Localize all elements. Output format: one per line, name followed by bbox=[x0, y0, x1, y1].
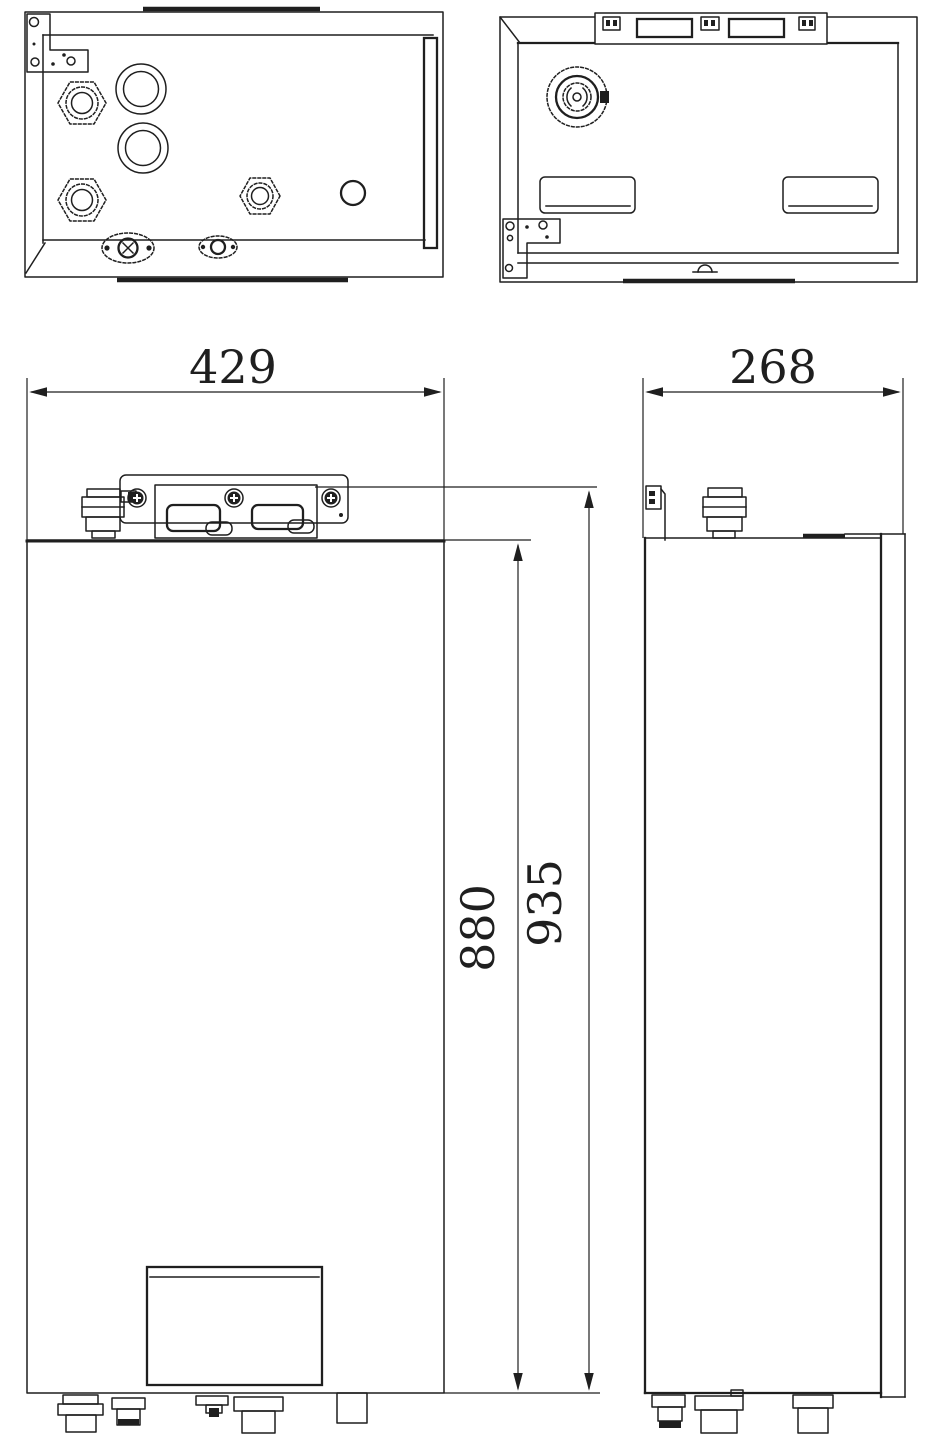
casing-inner-edges bbox=[26, 35, 433, 273]
bottom-view bbox=[500, 13, 917, 282]
pipe-collar bbox=[116, 64, 166, 114]
dim-label-side-depth: 268 bbox=[729, 340, 817, 394]
round-port bbox=[341, 181, 365, 205]
flue-collar bbox=[703, 488, 746, 538]
hex-pipe-fitting bbox=[58, 179, 106, 221]
pipe-fitting bbox=[652, 1395, 685, 1428]
keyhole-slot bbox=[252, 505, 314, 533]
pipe-fitting bbox=[112, 1398, 145, 1425]
fan-knob bbox=[547, 67, 609, 127]
side-view bbox=[645, 486, 905, 1433]
dim-label-overall-height: 935 bbox=[518, 859, 572, 947]
bottom-pipe-connections bbox=[58, 1393, 367, 1433]
boiler-dimension-drawing: 429 268 880 935 bbox=[0, 0, 931, 1448]
pipe-fitting bbox=[793, 1395, 833, 1433]
bracket-screw bbox=[225, 489, 243, 507]
oval-mount-hole bbox=[199, 236, 237, 258]
mounting-bracket-top-left bbox=[27, 14, 88, 72]
oval-mount-hole bbox=[102, 233, 154, 263]
valve-stem bbox=[196, 1396, 228, 1417]
pipe-fitting bbox=[695, 1390, 743, 1433]
vent-slot bbox=[540, 177, 635, 213]
front-view bbox=[27, 475, 444, 1433]
side-rail bbox=[424, 38, 437, 248]
flue-collar bbox=[82, 489, 124, 538]
pipe-collar bbox=[118, 123, 168, 173]
pipe-stub bbox=[337, 1393, 367, 1423]
rear-mounting-rail bbox=[845, 534, 905, 1397]
bracket-screw bbox=[128, 489, 146, 507]
keyhole-slot bbox=[167, 505, 232, 535]
bottom-pipe-connections bbox=[652, 1390, 833, 1433]
dim-label-body-height: 880 bbox=[451, 884, 505, 972]
top-rear-view bbox=[25, 9, 443, 280]
wall-bracket bbox=[120, 475, 348, 538]
hex-pipe-fitting bbox=[240, 178, 280, 214]
bracket-screw bbox=[322, 489, 340, 507]
top-mounting-strip bbox=[595, 13, 827, 44]
drain-tab bbox=[693, 265, 717, 272]
hex-pipe-fitting bbox=[58, 82, 106, 124]
body-outline bbox=[27, 540, 444, 1393]
hanging-cleat bbox=[646, 486, 665, 540]
mounting-bracket-bottom-left bbox=[503, 219, 560, 278]
casing-outline bbox=[500, 17, 917, 282]
vent-slot bbox=[783, 177, 878, 213]
dim-label-front-width: 429 bbox=[189, 340, 277, 394]
pipe-fitting bbox=[234, 1397, 283, 1433]
corner-edge bbox=[500, 17, 520, 43]
dimension-side-depth: 268 bbox=[643, 340, 903, 538]
drawing-svg: 429 268 880 935 bbox=[0, 0, 931, 1448]
dimension-body-height: 880 bbox=[444, 540, 600, 1393]
control-panel bbox=[147, 1267, 322, 1385]
dimension-front-width: 429 bbox=[27, 340, 444, 540]
pipe-fitting bbox=[58, 1395, 103, 1432]
